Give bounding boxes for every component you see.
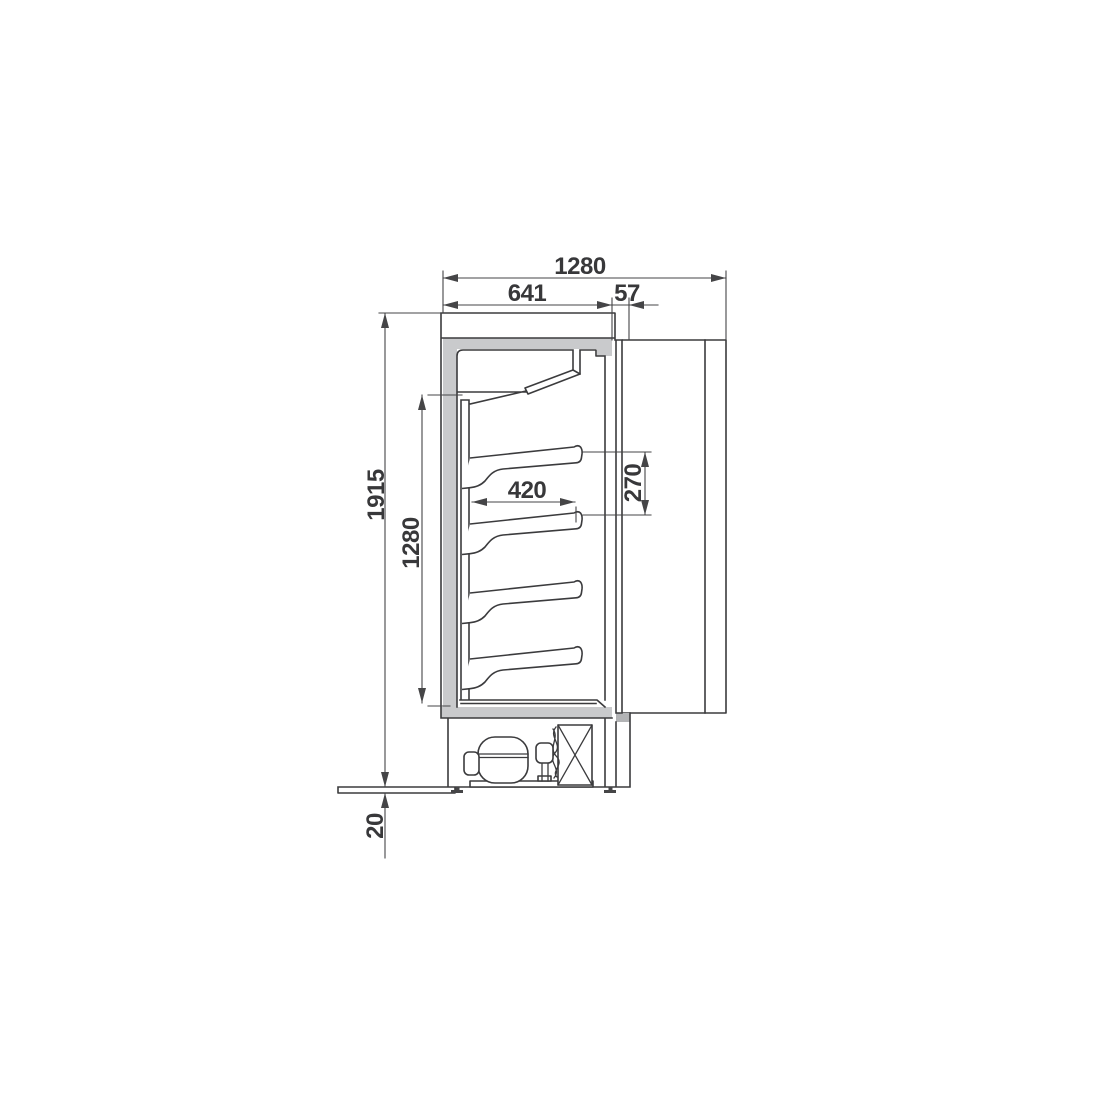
fan-motor [536, 743, 553, 763]
dim-label-overall-height: 1915 [363, 469, 390, 521]
insulation-top [443, 338, 612, 349]
dim-label-shelf-spacing: 270 [620, 464, 647, 503]
leveling-feet [451, 787, 616, 793]
front-glass-door [622, 340, 726, 713]
door-bottom-gasket [616, 713, 630, 722]
dim-label-opening-height: 1280 [398, 517, 425, 569]
dim-label-overall-depth: 1280 [554, 253, 606, 280]
insulation-top-step [597, 349, 612, 356]
dim-label-front-offset: 57 [614, 280, 640, 307]
drawing-page: 1280 641 57 1915 1280 420 270 20 [0, 0, 1100, 1100]
compressor [478, 737, 528, 783]
cabinet-outline [338, 313, 630, 793]
insulation-floor [441, 707, 612, 718]
shelf [462, 581, 582, 624]
dim-label-base-plate-thickness: 20 [362, 813, 389, 839]
compressor-terminal [464, 752, 479, 775]
shelf [462, 647, 582, 690]
dim-label-shelf-depth: 420 [508, 477, 547, 504]
insulation-back-wall [443, 349, 457, 718]
shelf [462, 512, 582, 555]
cabinet-section-drawing: 1280 641 57 1915 1280 420 270 20 [0, 0, 1100, 1100]
cabinet-body [338, 313, 726, 793]
dim-label-body-depth: 641 [508, 280, 547, 307]
canopy-light [525, 370, 580, 394]
machine-compartment [464, 725, 593, 787]
fan-motor-base [538, 776, 551, 781]
